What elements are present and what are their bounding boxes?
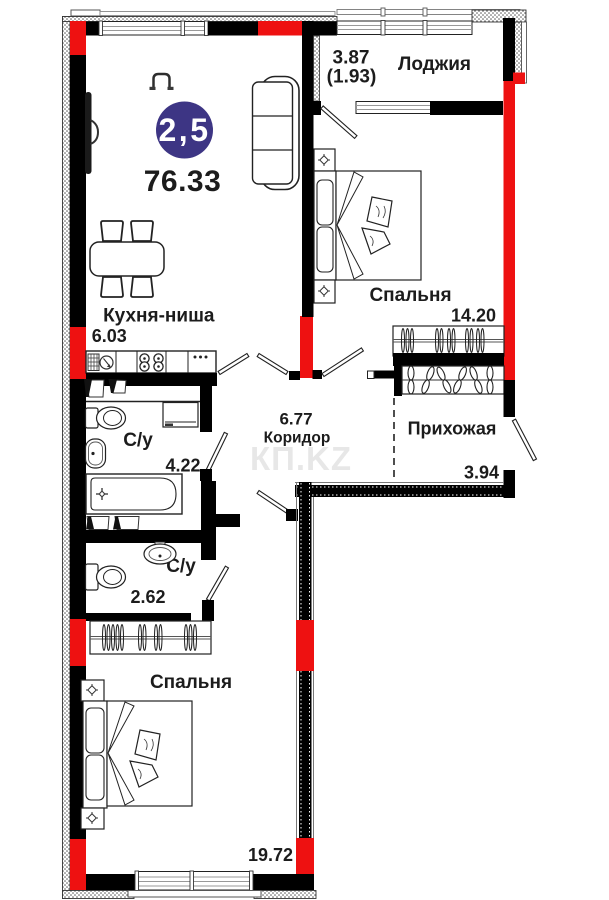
svg-text:С/у: С/у [123, 430, 153, 451]
svg-text:3.87: 3.87 [333, 48, 370, 69]
svg-text:19.72: 19.72 [248, 845, 293, 865]
svg-text:6.03: 6.03 [92, 326, 127, 346]
svg-text:4.22: 4.22 [165, 456, 200, 476]
svg-text:Лоджия: Лоджия [398, 54, 471, 75]
svg-text:Спальня: Спальня [150, 672, 232, 693]
svg-text:КП.KZ: КП.KZ [250, 440, 352, 477]
svg-text:Кухня-ниша: Кухня-ниша [103, 306, 215, 327]
svg-text:6.77: 6.77 [279, 410, 312, 429]
svg-text:2.62: 2.62 [130, 587, 165, 607]
svg-text:(1.93): (1.93) [327, 67, 377, 88]
svg-text:2,5: 2,5 [159, 112, 211, 148]
svg-text:Прихожая: Прихожая [408, 419, 497, 439]
svg-text:14.20: 14.20 [451, 306, 496, 326]
svg-text:Спальня: Спальня [369, 285, 451, 306]
svg-text:76.33: 76.33 [144, 165, 222, 198]
svg-text:3.94: 3.94 [464, 463, 499, 483]
